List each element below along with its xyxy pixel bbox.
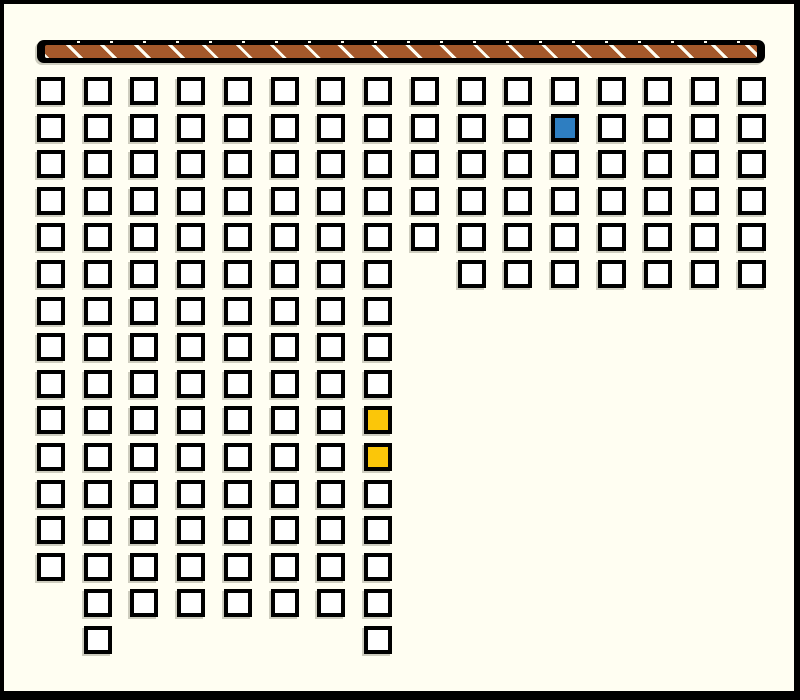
grid-cell[interactable] (691, 223, 719, 251)
grid-cell[interactable] (130, 260, 158, 288)
grid-cell[interactable] (271, 150, 299, 178)
grid-cell[interactable] (37, 297, 65, 325)
grid-cell[interactable] (177, 223, 205, 251)
grid-cell[interactable] (504, 77, 532, 105)
grid-cell[interactable] (84, 589, 112, 617)
grid-cell[interactable] (271, 333, 299, 361)
grid-cell[interactable] (130, 589, 158, 617)
grid-cell[interactable] (84, 187, 112, 215)
grid-cell[interactable] (411, 187, 439, 215)
grid-cell[interactable] (84, 150, 112, 178)
grid-cell[interactable] (504, 223, 532, 251)
grid-cell[interactable] (364, 77, 392, 105)
grid-cell[interactable] (130, 187, 158, 215)
grid-cell[interactable] (271, 260, 299, 288)
grid-cell[interactable] (458, 223, 486, 251)
grid-cell[interactable] (224, 516, 252, 544)
grid-cell[interactable] (271, 443, 299, 471)
grid-cell[interactable] (317, 114, 345, 142)
grid-cell[interactable] (130, 516, 158, 544)
grid-cell[interactable] (224, 77, 252, 105)
grid-cell[interactable] (177, 516, 205, 544)
grid-cell[interactable] (130, 480, 158, 508)
grid-cell[interactable] (551, 187, 579, 215)
yellow-highlighted-cell-1[interactable] (364, 406, 392, 434)
grid-cell[interactable] (271, 223, 299, 251)
grid-cell[interactable] (177, 150, 205, 178)
grid-cell[interactable] (84, 370, 112, 398)
grid-cell[interactable] (84, 443, 112, 471)
grid-cell[interactable] (37, 406, 65, 434)
grid-cell[interactable] (458, 150, 486, 178)
grid-cell[interactable] (37, 77, 65, 105)
grid-cell[interactable] (317, 443, 345, 471)
grid-cell[interactable] (224, 187, 252, 215)
grid-cell[interactable] (738, 114, 766, 142)
grid-cell[interactable] (411, 114, 439, 142)
yellow-highlighted-cell-2[interactable] (364, 443, 392, 471)
grid-cell[interactable] (504, 187, 532, 215)
grid-cell[interactable] (691, 114, 719, 142)
grid-cell[interactable] (691, 150, 719, 178)
grid-cell[interactable] (644, 223, 672, 251)
grid-cell[interactable] (364, 187, 392, 215)
grid-cell[interactable] (84, 406, 112, 434)
grid-cell[interactable] (317, 589, 345, 617)
grid-cell[interactable] (644, 150, 672, 178)
grid-cell[interactable] (130, 77, 158, 105)
grid-cell[interactable] (224, 443, 252, 471)
grid-cell[interactable] (271, 406, 299, 434)
grid-cell[interactable] (177, 443, 205, 471)
grid-cell[interactable] (271, 589, 299, 617)
grid-cell[interactable] (37, 260, 65, 288)
grid-cell[interactable] (177, 370, 205, 398)
grid-cell[interactable] (130, 553, 158, 581)
grid-cell[interactable] (644, 114, 672, 142)
grid-cell[interactable] (130, 150, 158, 178)
grid-cell[interactable] (411, 77, 439, 105)
grid-cell[interactable] (37, 150, 65, 178)
grid-cell[interactable] (271, 370, 299, 398)
grid-cell[interactable] (317, 516, 345, 544)
grid-cell[interactable] (224, 589, 252, 617)
grid-cell[interactable] (177, 260, 205, 288)
grid-cell[interactable] (364, 626, 392, 654)
grid-cell[interactable] (224, 370, 252, 398)
grid-cell[interactable] (317, 370, 345, 398)
grid-cell[interactable] (364, 223, 392, 251)
grid-cell[interactable] (644, 187, 672, 215)
blue-highlighted-cell[interactable] (551, 114, 579, 142)
grid-cell[interactable] (177, 297, 205, 325)
grid-cell[interactable] (504, 150, 532, 178)
grid-cell[interactable] (84, 297, 112, 325)
grid-cell[interactable] (598, 260, 626, 288)
grid-cell[interactable] (271, 553, 299, 581)
grid-cell[interactable] (364, 553, 392, 581)
grid-cell[interactable] (130, 370, 158, 398)
grid-cell[interactable] (551, 260, 579, 288)
grid-cell[interactable] (130, 333, 158, 361)
grid-cell[interactable] (458, 260, 486, 288)
grid-cell[interactable] (37, 516, 65, 544)
seat-grid (0, 0, 800, 700)
grid-cell[interactable] (504, 114, 532, 142)
grid-cell[interactable] (177, 333, 205, 361)
grid-cell[interactable] (738, 223, 766, 251)
grid-cell[interactable] (37, 480, 65, 508)
grid-cell[interactable] (177, 406, 205, 434)
grid-cell[interactable] (37, 370, 65, 398)
grid-cell[interactable] (691, 260, 719, 288)
grid-cell[interactable] (598, 77, 626, 105)
grid-cell[interactable] (224, 297, 252, 325)
grid-cell[interactable] (224, 260, 252, 288)
grid-cell[interactable] (738, 187, 766, 215)
grid-cell[interactable] (177, 187, 205, 215)
grid-cell[interactable] (271, 480, 299, 508)
grid-cell[interactable] (84, 480, 112, 508)
grid-cell[interactable] (224, 406, 252, 434)
grid-cell[interactable] (551, 77, 579, 105)
grid-cell[interactable] (177, 77, 205, 105)
grid-cell[interactable] (317, 260, 345, 288)
grid-cell[interactable] (364, 333, 392, 361)
grid-cell[interactable] (130, 297, 158, 325)
grid-cell[interactable] (224, 114, 252, 142)
grid-cell[interactable] (691, 187, 719, 215)
grid-cell[interactable] (458, 114, 486, 142)
grid-cell[interactable] (37, 333, 65, 361)
grid-cell[interactable] (84, 516, 112, 544)
wall-top-dots (47, 41, 755, 43)
hatched-wall (37, 40, 765, 63)
grid-cell[interactable] (37, 553, 65, 581)
grid-cell[interactable] (130, 443, 158, 471)
grid-cell[interactable] (84, 114, 112, 142)
grid-cell[interactable] (37, 443, 65, 471)
grid-cell[interactable] (364, 114, 392, 142)
grid-cell[interactable] (177, 553, 205, 581)
grid-cell[interactable] (738, 260, 766, 288)
grid-cell[interactable] (317, 480, 345, 508)
grid-cell[interactable] (224, 480, 252, 508)
grid-cell[interactable] (37, 223, 65, 251)
grid-cell[interactable] (317, 406, 345, 434)
grid-cell[interactable] (271, 516, 299, 544)
grid-cell[interactable] (224, 150, 252, 178)
grid-cell[interactable] (364, 480, 392, 508)
grid-cell[interactable] (271, 114, 299, 142)
grid-cell[interactable] (317, 150, 345, 178)
grid-cell[interactable] (37, 114, 65, 142)
grid-cell[interactable] (644, 77, 672, 105)
grid-cell[interactable] (84, 333, 112, 361)
grid-cell[interactable] (364, 370, 392, 398)
grid-cell[interactable] (177, 480, 205, 508)
grid-cell[interactable] (364, 516, 392, 544)
grid-cell[interactable] (177, 114, 205, 142)
grid-cell[interactable] (317, 553, 345, 581)
grid-cell[interactable] (224, 333, 252, 361)
grid-cell[interactable] (551, 223, 579, 251)
grid-cell[interactable] (271, 187, 299, 215)
grid-cell[interactable] (84, 626, 112, 654)
grid-cell[interactable] (224, 553, 252, 581)
grid-cell[interactable] (317, 223, 345, 251)
grid-cell[interactable] (364, 260, 392, 288)
grid-cell[interactable] (458, 77, 486, 105)
grid-cell[interactable] (130, 223, 158, 251)
grid-cell[interactable] (130, 114, 158, 142)
grid-cell[interactable] (551, 150, 579, 178)
grid-cell[interactable] (598, 223, 626, 251)
grid-cell[interactable] (364, 297, 392, 325)
grid-cell[interactable] (364, 150, 392, 178)
grid-cell[interactable] (598, 150, 626, 178)
grid-cell[interactable] (37, 187, 65, 215)
grid-cell[interactable] (271, 77, 299, 105)
grid-cell[interactable] (317, 333, 345, 361)
grid-cell[interactable] (411, 150, 439, 178)
grid-cell[interactable] (271, 297, 299, 325)
wall-stripe-band (45, 45, 757, 58)
grid-cell[interactable] (224, 223, 252, 251)
grid-cell[interactable] (317, 77, 345, 105)
grid-cell[interactable] (84, 553, 112, 581)
grid-cell[interactable] (598, 187, 626, 215)
grid-cell[interactable] (411, 223, 439, 251)
grid-cell[interactable] (738, 150, 766, 178)
grid-cell[interactable] (644, 260, 672, 288)
room-canvas (0, 0, 800, 700)
grid-cell[interactable] (598, 114, 626, 142)
grid-cell[interactable] (177, 589, 205, 617)
grid-cell[interactable] (317, 297, 345, 325)
grid-cell[interactable] (84, 260, 112, 288)
grid-cell[interactable] (458, 187, 486, 215)
grid-cell[interactable] (738, 77, 766, 105)
grid-cell[interactable] (84, 77, 112, 105)
grid-cell[interactable] (691, 77, 719, 105)
grid-cell[interactable] (504, 260, 532, 288)
grid-cell[interactable] (130, 406, 158, 434)
grid-cell[interactable] (84, 223, 112, 251)
grid-cell[interactable] (317, 187, 345, 215)
grid-cell[interactable] (364, 589, 392, 617)
